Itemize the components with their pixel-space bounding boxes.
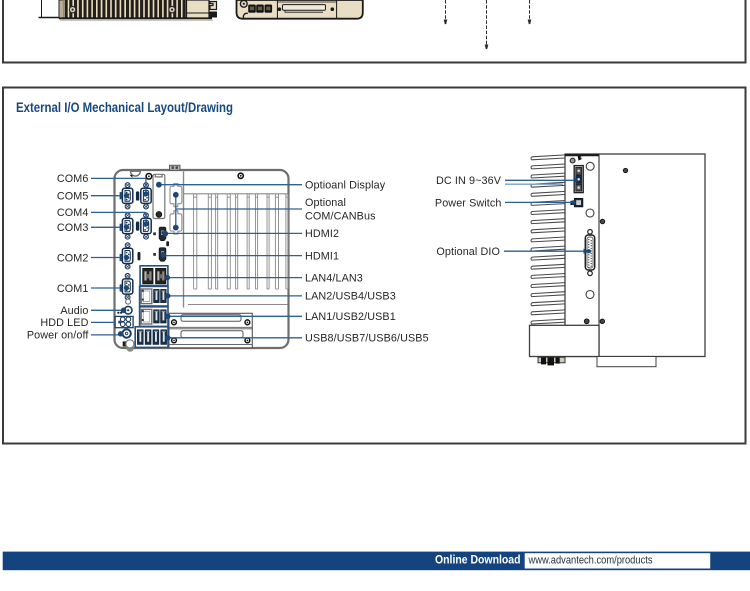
svg-text:www.advantech.com/products: www.advantech.com/products	[528, 555, 653, 567]
svg-text:LAN1/USB2/USB1: LAN1/USB2/USB1	[305, 311, 396, 323]
svg-text:Optional DIO: Optional DIO	[436, 246, 500, 258]
svg-text:Power on/off: Power on/off	[27, 330, 90, 342]
svg-text:COM6: COM6	[57, 173, 89, 185]
svg-text:COM1: COM1	[57, 283, 89, 295]
svg-text:COM3: COM3	[57, 222, 89, 234]
svg-text:Online Download: Online Download	[435, 553, 521, 566]
svg-text:USB8/USB7/USB6/USB5: USB8/USB7/USB6/USB5	[305, 333, 429, 345]
svg-text:COM5: COM5	[57, 191, 89, 203]
svg-text:HDD LED: HDD LED	[40, 317, 88, 329]
svg-text:LAN2/USB4/USB3: LAN2/USB4/USB3	[305, 291, 396, 303]
svg-text:Optioanl Display: Optioanl Display	[305, 180, 386, 192]
svg-text:HDMI1: HDMI1	[305, 250, 339, 262]
svg-text:Optional: Optional	[305, 197, 346, 209]
svg-text:Power Switch: Power Switch	[435, 197, 502, 209]
svg-text:LAN4/LAN3: LAN4/LAN3	[305, 272, 363, 284]
svg-text:DC IN 9~36V: DC IN 9~36V	[436, 175, 502, 187]
svg-text:Audio: Audio	[60, 305, 88, 317]
svg-text:HDMI2: HDMI2	[305, 228, 339, 240]
svg-text:External I/O Mechanical Layout: External I/O Mechanical Layout/Drawing	[16, 100, 233, 115]
svg-text:COM4: COM4	[57, 207, 89, 219]
svg-text:COM2: COM2	[57, 253, 89, 265]
svg-text:COM/CANBus: COM/CANBus	[305, 211, 376, 223]
